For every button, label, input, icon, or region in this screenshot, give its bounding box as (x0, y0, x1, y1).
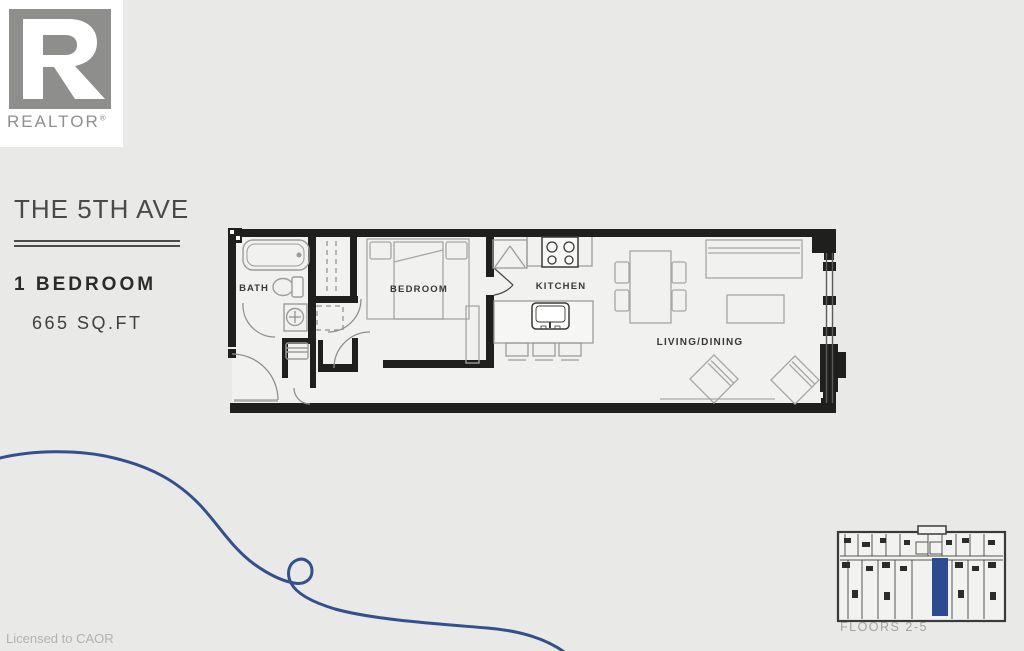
highlighted-unit (932, 558, 948, 616)
living-dining-label: LIVING/DINING (657, 337, 744, 348)
key-plan (838, 526, 1005, 621)
floor-plan-svg: BATH BEDROOM KITCHEN LIVING/DINING (0, 0, 1024, 651)
signature-squiggle (0, 452, 567, 651)
bath-label: BATH (239, 283, 269, 294)
corner-column (228, 228, 242, 243)
listing-image: REALTOR® THE 5TH AVE 1 BEDROOM 665 SQ.FT (0, 0, 1024, 651)
kitchen-label: KITCHEN (536, 281, 587, 292)
key-plan-caption: FLOORS 2-5 (840, 620, 928, 634)
license-text: Licensed to CAOR (6, 631, 114, 646)
bedroom-label: BEDROOM (390, 284, 448, 295)
